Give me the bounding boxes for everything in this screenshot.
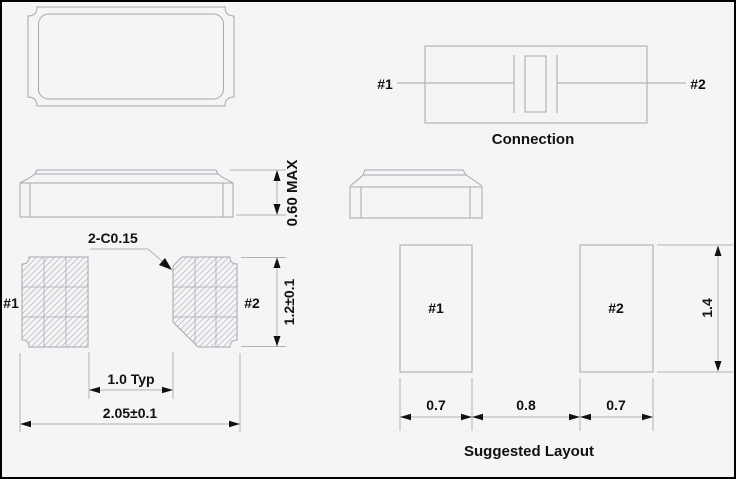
connection-title: Connection xyxy=(492,131,575,148)
pad1 xyxy=(22,257,88,347)
layout-arrow-3r xyxy=(642,414,653,420)
pad-height-arrow-up xyxy=(274,258,281,269)
suggested-layout: #1 #2 1.4 0.7 0.8 0.7 Suggested Layout xyxy=(400,245,733,460)
layout-right-pad-dim-text: 0.7 xyxy=(606,397,626,413)
layout-height-dim-text: 1.4 xyxy=(699,298,715,318)
layout-height-arrow-down xyxy=(715,361,722,372)
technical-drawing: 0.60 MAX #1 #2 Connection xyxy=(2,2,734,477)
layout-left-pad-dim-text: 0.7 xyxy=(426,397,446,413)
layout-title: Suggested Layout xyxy=(464,443,594,460)
connection-pin2-label: #2 xyxy=(690,76,706,92)
end-view-lid-profile xyxy=(350,170,482,186)
package-end-view xyxy=(350,170,482,218)
top-view-lid-outline xyxy=(39,14,224,99)
pad-height-dim-text: 1.2±0.1 xyxy=(281,278,297,325)
package-side-view: 0.60 MAX xyxy=(20,160,301,227)
height-arrow-down xyxy=(274,204,281,215)
package-top-view xyxy=(28,7,234,106)
chamfer-leader-line xyxy=(90,249,163,262)
bottom-pad1-label: #1 xyxy=(3,295,19,311)
layout-arrow-2r xyxy=(569,414,580,420)
side-view-lid-profile xyxy=(20,170,233,183)
layout-arrow-1r xyxy=(461,414,472,420)
layout-arrow-2l xyxy=(472,414,483,420)
pitch-dim-text: 1.0 Typ xyxy=(107,371,154,387)
connection-box xyxy=(425,46,647,123)
package-bottom-view: #1 #2 2-C0.15 1.2±0.1 1.0 Typ 2.05±0.1 xyxy=(3,230,297,432)
layout-pad1-label: #1 xyxy=(428,300,444,316)
top-view-outer-body xyxy=(28,7,234,106)
end-view-base xyxy=(350,187,482,218)
pad2 xyxy=(173,257,237,347)
body-width-arrow-right xyxy=(229,421,240,427)
layout-arrow-1l xyxy=(400,414,411,420)
layout-gap-dim-text: 0.8 xyxy=(516,397,536,413)
bottom-pad2-label: #2 xyxy=(244,295,260,311)
pitch-arrow-left xyxy=(89,387,100,393)
body-width-arrow-left xyxy=(20,421,31,427)
chamfer-note-text: 2-C0.15 xyxy=(88,230,138,246)
body-width-dim-text: 2.05±0.1 xyxy=(103,405,158,421)
height-arrow-up xyxy=(274,170,281,181)
drawing-sheet: 0.60 MAX #1 #2 Connection xyxy=(0,0,736,479)
connection-diagram: #1 #2 Connection xyxy=(377,46,706,148)
pitch-arrow-right xyxy=(162,387,173,393)
layout-arrow-3l xyxy=(580,414,591,420)
side-view-base xyxy=(20,183,233,217)
connection-pin1-label: #1 xyxy=(377,76,393,92)
height-dim-text: 0.60 MAX xyxy=(284,160,301,227)
layout-pad2-label: #2 xyxy=(608,300,624,316)
pad-height-arrow-down xyxy=(274,336,281,347)
layout-height-arrow-up xyxy=(715,246,722,257)
crystal-symbol xyxy=(525,56,546,112)
